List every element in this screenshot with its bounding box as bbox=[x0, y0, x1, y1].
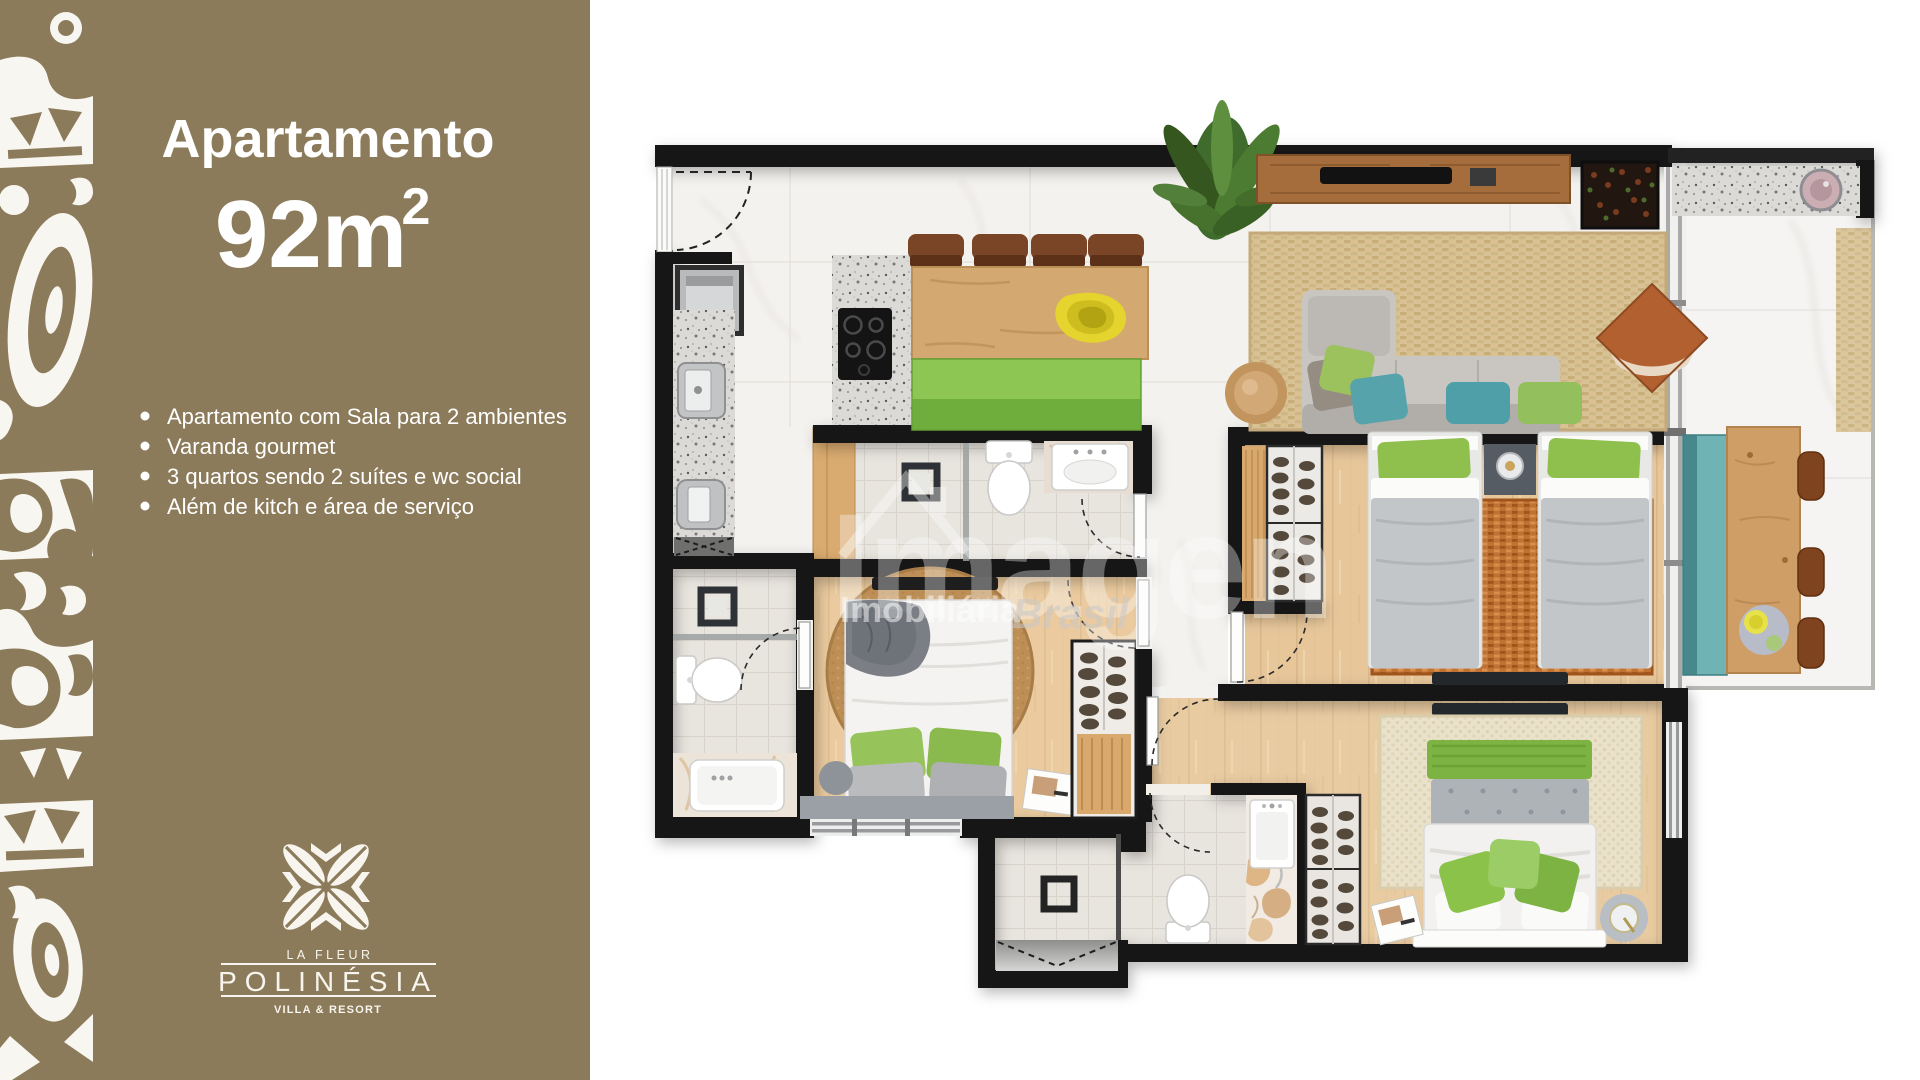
svg-text:Varanda gourmet: Varanda gourmet bbox=[167, 434, 335, 459]
svg-text:3 quartos sendo 2 suítes e wc: 3 quartos sendo 2 suítes e wc social bbox=[167, 464, 522, 489]
svg-text:Além de kitch e área de serviç: Além de kitch e área de serviço bbox=[167, 494, 474, 519]
svg-text:LA FLEUR: LA FLEUR bbox=[286, 948, 373, 962]
svg-text:Apartamento com Sala para 2 am: Apartamento com Sala para 2 ambientes bbox=[167, 404, 567, 429]
svg-text:Imobiliária: Imobiliária bbox=[840, 589, 1021, 630]
svg-text:POLINÉSIA: POLINÉSIA bbox=[218, 966, 438, 997]
svg-text:Brasil: Brasil bbox=[1012, 590, 1130, 637]
svg-text:2: 2 bbox=[402, 178, 431, 236]
svg-text:92m: 92m bbox=[215, 181, 407, 288]
svg-text:VILLA & RESORT: VILLA & RESORT bbox=[274, 1004, 382, 1016]
svg-text:Apartamento: Apartamento bbox=[161, 109, 494, 169]
